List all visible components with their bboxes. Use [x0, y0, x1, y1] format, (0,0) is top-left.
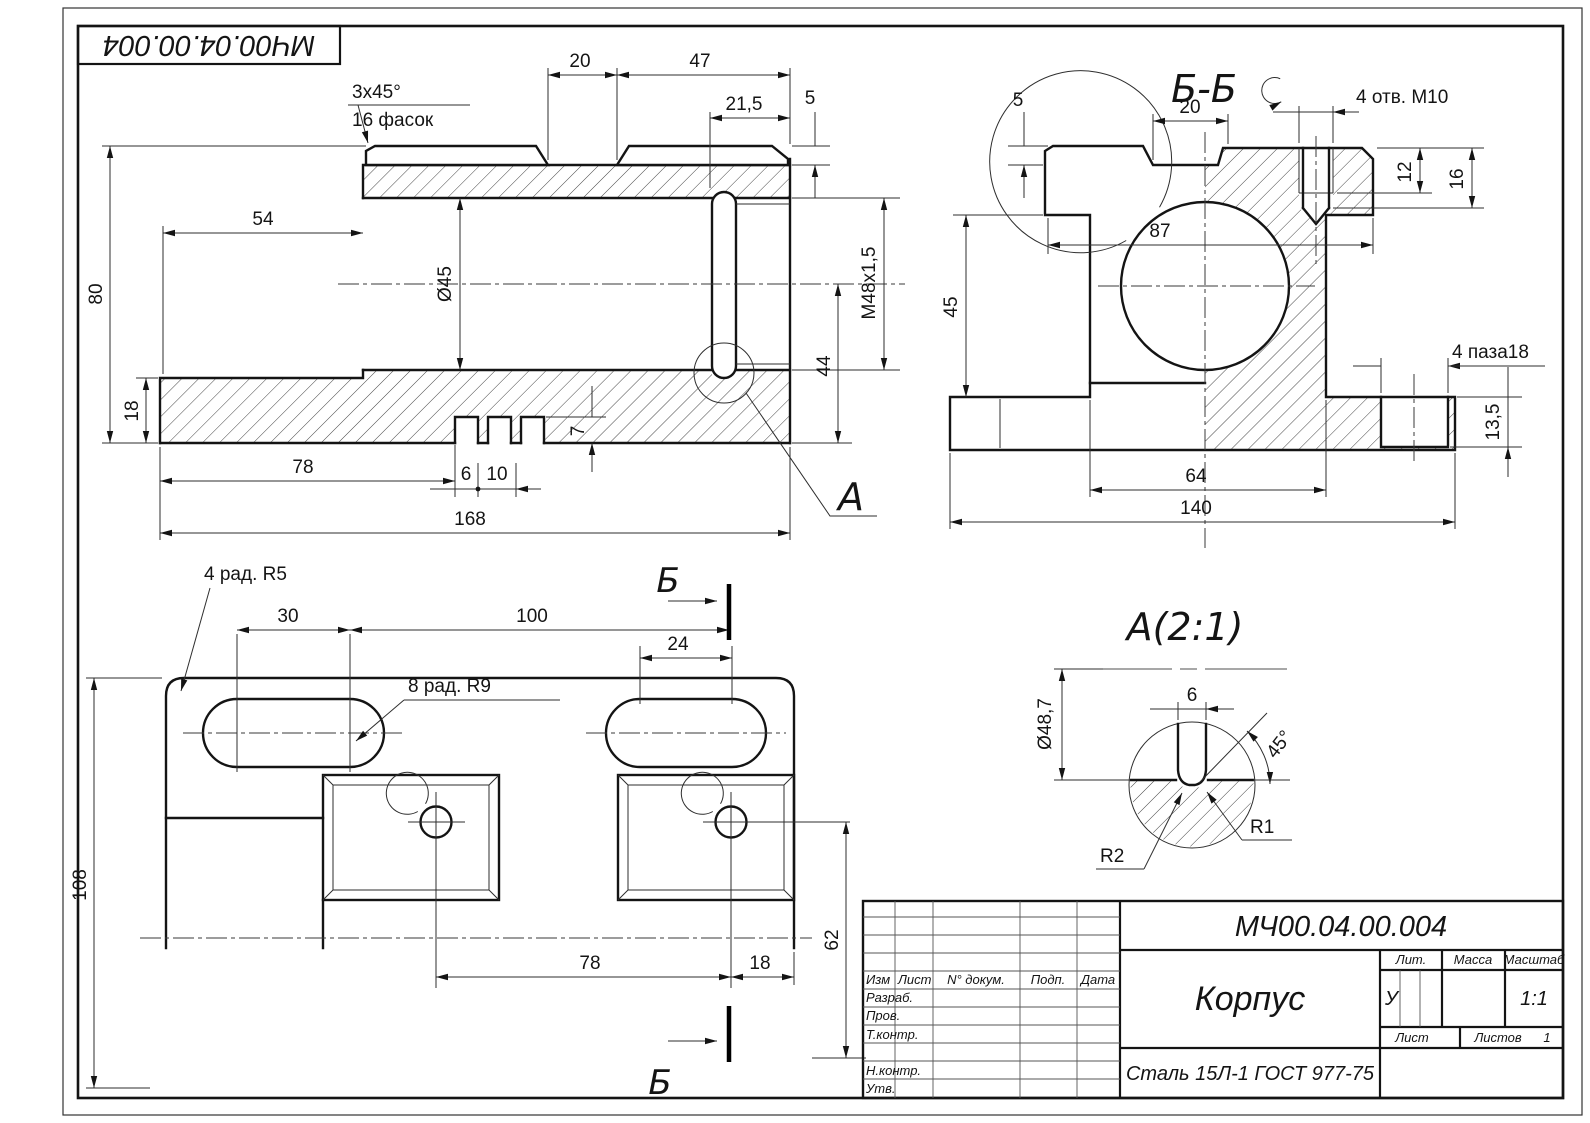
plan-dim-r9: 8 рад. R9	[408, 676, 491, 697]
dim-dia45: Ø45	[435, 266, 456, 302]
tb-tkontr: Т.контр.	[866, 1027, 918, 1042]
dim-m48: M48x1,5	[859, 247, 880, 320]
tb-prov: Пров.	[866, 1008, 900, 1023]
stamp-doc-number: МЧ00.04.00.004	[103, 29, 315, 61]
tb-doc-number: МЧ00.04.00.004	[1235, 911, 1447, 943]
dim-78: 78	[292, 457, 313, 478]
tb-sheets-value: 1	[1543, 1030, 1550, 1045]
main-pad-left	[366, 146, 548, 165]
bb-dim-140: 140	[1180, 498, 1212, 519]
bb-dim-12: 12	[1395, 161, 1416, 182]
detail-a-label: А	[835, 475, 864, 519]
bb-dim-16: 16	[1447, 168, 1468, 189]
bb-dim-45: 45	[941, 296, 962, 317]
dim-10: 10	[486, 464, 507, 485]
plan-dim-18: 18	[749, 953, 770, 974]
plan-dim-100: 100	[516, 606, 548, 627]
bb-dim-13-5: 13,5	[1483, 404, 1504, 441]
tb-date: Дата	[1079, 972, 1115, 987]
tb-lit: Лит.	[1395, 952, 1426, 967]
tb-scale-value: 1:1	[1520, 988, 1548, 1010]
dim-5: 5	[805, 88, 816, 109]
bb-dim-87: 87	[1149, 221, 1170, 242]
tb-material: Сталь 15Л-1 ГОСТ 977-75	[1126, 1063, 1375, 1085]
dim-7: 7	[568, 426, 589, 437]
tb-izm: Изм	[866, 972, 890, 987]
tb-razrab: Разраб.	[866, 990, 913, 1005]
main-thread-groove	[712, 192, 736, 378]
tb-massa: Масса	[1454, 952, 1492, 967]
dim-21-5: 21,5	[726, 94, 763, 115]
detail-dim-6: 6	[1187, 685, 1198, 706]
dim-6: 6	[461, 464, 472, 485]
tb-nkontr: Н.контр.	[866, 1063, 921, 1078]
dim-54: 54	[252, 209, 274, 230]
plan-dim-62: 62	[822, 929, 843, 950]
detail-dim-r1: R1	[1250, 817, 1274, 838]
plan-dim-r5: 4 рад. R5	[204, 564, 287, 585]
bb-dim-5: 5	[1013, 90, 1024, 111]
tb-list2: Лист	[1394, 1030, 1429, 1045]
bb-dim-slots: 4 паза18	[1452, 342, 1529, 363]
tb-list: Лист	[897, 972, 932, 987]
plan-dim-30: 30	[277, 606, 298, 627]
tb-part-name: Корпус	[1195, 980, 1306, 1018]
dim-20: 20	[569, 51, 590, 72]
detail-dim-r2: R2	[1100, 846, 1124, 867]
bb-dim-64: 64	[1185, 466, 1207, 487]
tb-utv: Утв.	[865, 1081, 896, 1096]
dim-44: 44	[814, 355, 835, 377]
top-stamp: МЧ00.04.00.004	[78, 26, 340, 64]
section-label-top: Б	[656, 561, 679, 601]
plan-dim-108: 108	[70, 869, 91, 901]
bb-dim-20: 20	[1179, 97, 1200, 118]
dim-168: 168	[454, 509, 486, 530]
tb-masshtab: Масштаб	[1504, 952, 1565, 967]
dim-18: 18	[122, 400, 143, 421]
detail-dim-dia: Ø48,7	[1035, 698, 1056, 750]
tb-podp: Подп.	[1031, 972, 1066, 987]
section-label-bottom: Б	[648, 1063, 671, 1103]
dim-80: 80	[86, 283, 107, 304]
plan-dim-24: 24	[667, 634, 689, 655]
tb-litera-value: У	[1384, 988, 1400, 1010]
dim-chamfer: 3x45°	[352, 82, 401, 103]
plan-dim-78: 78	[579, 953, 600, 974]
detail-title: А(2:1)	[1124, 605, 1244, 649]
main-pad-right	[617, 146, 788, 165]
drawing-sheet: МЧ00.04.00.004 А 20	[0, 0, 1590, 1123]
drawing-svg: МЧ00.04.00.004 А 20	[0, 0, 1590, 1123]
dim-47: 47	[689, 51, 710, 72]
tb-listov: Листов	[1473, 1030, 1522, 1045]
bb-dim-holes: 4 отв. М10	[1356, 87, 1448, 108]
tb-doc: N° докум.	[947, 972, 1005, 987]
